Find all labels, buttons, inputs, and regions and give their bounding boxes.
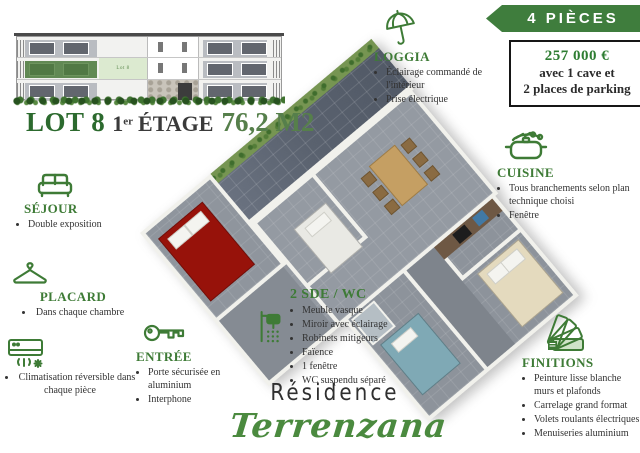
air-conditioner-icon <box>4 338 136 370</box>
shower-icon <box>256 308 286 348</box>
sde-row: Meuble vasque Miroir avec éclairage Robi… <box>256 304 392 388</box>
building-elevation: Lot 8 <box>16 33 282 111</box>
callout-climatisation-list: Climatisation réversible dans chaque piè… <box>4 371 136 397</box>
floor-word: ÉTAGE <box>138 111 213 136</box>
louver-panel <box>17 61 25 78</box>
small-window <box>158 63 163 73</box>
callout-entree-title: ENTRÉE <box>136 349 248 365</box>
balcony-module <box>25 40 97 57</box>
elevation-floors: Lot 8 <box>16 36 282 100</box>
feature-item: Volets roulants électriques <box>534 413 640 426</box>
shrubs <box>13 95 285 106</box>
rooms-banner-label: 4 PIÈCES <box>527 10 619 27</box>
umbrella-icon <box>380 8 484 48</box>
lot-number: LOT 8 <box>26 107 105 137</box>
louver-panel <box>273 40 281 57</box>
callout-cuisine: CUISINE Tous branchements selon plan tec… <box>497 128 637 223</box>
callout-placard-list: Dans chaque chambre <box>12 306 134 319</box>
window <box>207 63 233 76</box>
callout-sejour-list: Double exposition <box>16 218 141 231</box>
price-value: 257 000 € <box>514 48 640 65</box>
brochure-page: Lot 8 <box>0 0 640 453</box>
feature-item: Robinets mitigeurs <box>302 332 388 345</box>
feature-item: 1 fenêtre <box>302 360 388 373</box>
feature-item: Éclairage commandé de l'intérieur <box>386 66 484 92</box>
key-icon <box>142 318 248 348</box>
feature-item: Faïence <box>302 346 388 359</box>
rooms-banner: 4 PIÈCES <box>486 5 640 32</box>
window <box>207 42 233 55</box>
floor-number: 1 <box>112 111 123 136</box>
swatch-fan-icon <box>544 314 640 354</box>
cooking-pot-icon <box>503 128 637 164</box>
price-line-parking: 2 places de parking <box>514 81 640 97</box>
callout-loggia-list: Éclairage commandé de l'intérieur Prise … <box>374 66 484 106</box>
window <box>63 42 89 55</box>
callout-placard-title: PLACARD <box>12 289 134 305</box>
window <box>241 42 267 55</box>
feature-item: Miroir avec éclairage <box>302 318 388 331</box>
feature-item: Dans chaque chambre <box>12 306 134 319</box>
callout-finitions: FINITIONS Peinture lisse blanche murs et… <box>522 314 640 441</box>
lot8-highlight <box>25 61 97 78</box>
kitchen-sink <box>472 210 489 227</box>
feature-item: Menuiseries aluminium <box>534 427 640 440</box>
balcony-module <box>203 61 267 78</box>
stairwell-section <box>147 37 199 57</box>
bed-pillow <box>304 212 332 238</box>
callout-sde-list: Meuble vasque Miroir avec éclairage Robi… <box>290 304 388 388</box>
logo-residence-text: Résidence <box>230 378 440 406</box>
residence-logo: Résidence Terrenzana <box>230 380 440 445</box>
window <box>241 63 267 76</box>
feature-item: Peinture lisse blanche murs et plafonds <box>534 372 640 398</box>
feature-item: Carrelage grand format <box>534 399 640 412</box>
feature-item: Tous branchements selon plan technique c… <box>509 182 637 208</box>
callout-loggia: LOGGIA Éclairage commandé de l'intérieur… <box>374 8 484 107</box>
sofa-icon <box>34 170 141 200</box>
small-window <box>182 42 187 52</box>
lot-title: LOT 81erÉTAGE76,2 M2 <box>26 107 314 138</box>
callout-sejour-title: SÉJOUR <box>24 201 141 217</box>
callout-cuisine-title: CUISINE <box>497 165 637 181</box>
callout-finitions-title: FINITIONS <box>522 355 640 371</box>
price-box: 257 000 € avec 1 cave et 2 places de par… <box>509 40 640 107</box>
callout-sde-title: 2 SDE / WC <box>256 287 392 303</box>
callout-cuisine-list: Tous branchements selon plan technique c… <box>497 182 637 222</box>
feature-item: Meuble vasque <box>302 304 388 317</box>
callout-climatisation: Climatisation réversible dans chaque piè… <box>4 338 136 398</box>
window <box>29 42 55 55</box>
surface-area: 76,2 M2 <box>221 107 314 137</box>
callout-loggia-title: LOGGIA <box>374 49 484 65</box>
floor-top <box>17 37 281 58</box>
callout-sejour: SÉJOUR Double exposition <box>16 170 141 232</box>
small-window <box>158 42 163 52</box>
small-window <box>182 63 187 73</box>
callout-placard: PLACARD Dans chaque chambre <box>12 258 134 320</box>
feature-item: Double exposition <box>28 218 141 231</box>
lot8-highlight-panel: Lot 8 <box>99 58 147 79</box>
louver-panel <box>273 61 281 78</box>
louver-panel <box>17 40 25 57</box>
hanger-icon <box>12 258 134 288</box>
lot8-tag: Lot 8 <box>116 66 129 71</box>
callout-finitions-list: Peinture lisse blanche murs et plafonds … <box>522 372 640 440</box>
callout-sde-wc: 2 SDE / WC Meuble vasque Miroir ave <box>256 286 392 388</box>
feature-item: Prise électrique <box>386 93 484 106</box>
price-line-cave: avec 1 cave et <box>514 65 640 81</box>
logo-terrenzana-text: Terrenzana <box>228 406 442 445</box>
balcony-module <box>203 40 267 57</box>
feature-item: Climatisation réversible dans chaque piè… <box>4 371 136 397</box>
stairwell-section <box>147 58 199 78</box>
feature-item: Fenêtre <box>509 209 637 222</box>
floor-ordinal: er <box>123 116 133 128</box>
floor-first: Lot 8 <box>17 58 281 79</box>
bed-pillow <box>391 327 419 353</box>
